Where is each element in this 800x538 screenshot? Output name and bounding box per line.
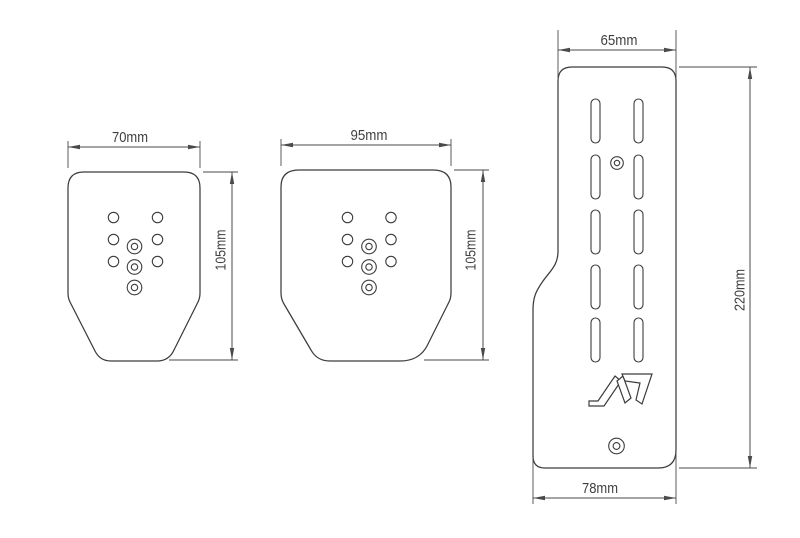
grip-slot — [634, 318, 643, 362]
countersunk-hole — [362, 239, 377, 254]
pedal-right: 65mm 220mm 78mm — [533, 30, 757, 504]
bolt-hole — [152, 234, 162, 244]
pedal-middle-holes — [342, 212, 396, 295]
dim-label-left-height: 105mm — [212, 230, 229, 271]
countersunk-hole — [611, 157, 624, 170]
bolt-hole — [152, 256, 162, 266]
dimension-right-bottom-width: 78mm — [533, 453, 676, 504]
countersunk-hole — [362, 260, 377, 275]
grip-slot — [591, 318, 600, 362]
pedal-left: 70mm 105mm — [68, 129, 238, 361]
countersunk-hole — [362, 280, 377, 295]
countersunk-hole — [131, 264, 137, 270]
grip-slot — [591, 99, 600, 143]
pedal-right-holes — [609, 157, 625, 454]
countersunk-hole — [366, 243, 372, 249]
countersunk-hole — [613, 443, 620, 450]
brand-n-logo-icon — [589, 374, 652, 406]
countersunk-hole — [131, 284, 137, 290]
pedal-right-slots — [591, 99, 643, 362]
countersunk-hole — [127, 239, 142, 254]
bolt-hole — [386, 256, 396, 266]
grip-slot — [634, 99, 643, 143]
dim-label-left-width: 70mm — [112, 129, 148, 146]
dimension-right-height: 220mm — [679, 67, 757, 468]
countersunk-hole — [127, 280, 142, 295]
dimension-left-height: 105mm — [169, 172, 238, 360]
bolt-hole — [108, 256, 118, 266]
pedal-left-holes — [108, 212, 162, 295]
grip-slot — [591, 155, 600, 199]
bolt-hole — [342, 256, 352, 266]
bolt-hole — [108, 212, 118, 222]
pedal-right-outline — [533, 67, 676, 468]
grip-slot — [634, 155, 643, 199]
bolt-hole — [386, 234, 396, 244]
grip-slot — [634, 265, 643, 309]
countersunk-hole — [131, 243, 137, 249]
dim-label-middle-width: 95mm — [351, 127, 388, 144]
pedal-left-outline — [68, 172, 200, 361]
drawing-svg: 70mm 105mm 95mm — [0, 0, 800, 538]
dim-label-right-bottom-width: 78mm — [582, 480, 618, 497]
countersunk-hole — [366, 264, 372, 270]
logo-left-stroke — [589, 376, 621, 406]
bolt-hole — [108, 234, 118, 244]
dimension-right-top-width: 65mm — [558, 30, 676, 80]
pedal-middle: 95mm 105mm — [281, 127, 489, 361]
dimension-left-width: 70mm — [68, 129, 200, 168]
pedal-dimension-drawing: 70mm 105mm 95mm — [0, 0, 800, 538]
countersunk-hole — [127, 260, 142, 275]
dim-label-right-top-width: 65mm — [601, 32, 638, 49]
grip-slot — [634, 210, 643, 254]
countersunk-hole — [366, 284, 372, 290]
grip-slot — [591, 210, 600, 254]
bolt-hole — [386, 212, 396, 222]
dimension-middle-width: 95mm — [281, 127, 451, 166]
countersunk-hole — [614, 160, 619, 165]
bolt-hole — [152, 212, 162, 222]
bolt-hole — [342, 234, 352, 244]
dim-label-right-height: 220mm — [731, 269, 748, 311]
bolt-hole — [342, 212, 352, 222]
countersunk-hole — [609, 438, 625, 454]
grip-slot — [591, 265, 600, 309]
dim-label-middle-height: 105mm — [462, 230, 479, 271]
